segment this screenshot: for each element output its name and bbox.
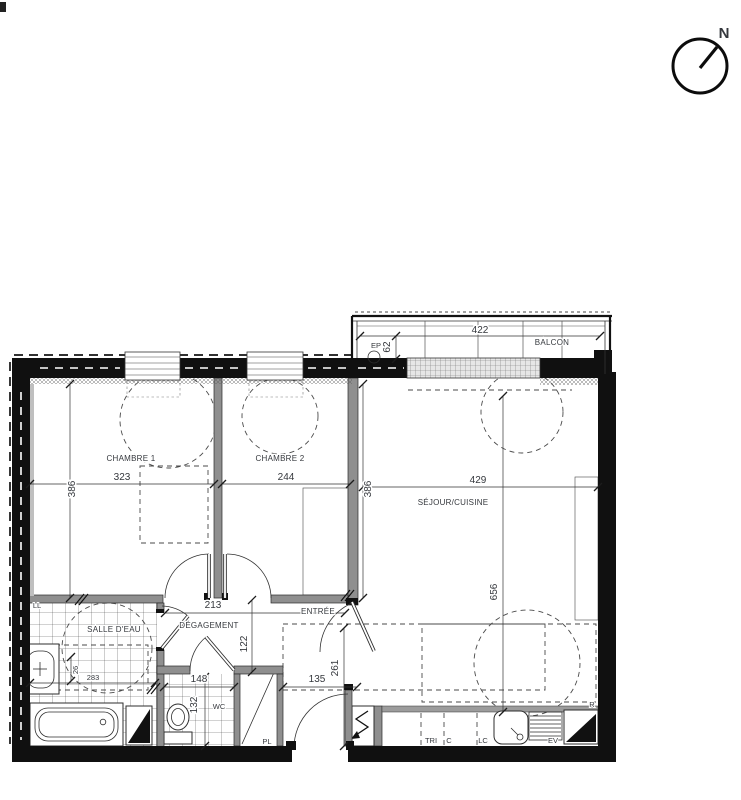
insulation-strip (540, 378, 598, 385)
room-label-degagement: DÉGAGEMENT (179, 621, 238, 630)
dim-chambre2-depth: 386 (363, 480, 374, 497)
label-c: C (446, 736, 452, 745)
dim-salle-deau-width: 283 (87, 673, 100, 682)
floor-plan-page: 422 62 386 323 244 386 429 656 213 122 1… (0, 0, 741, 800)
room-label-wc: WC (213, 702, 226, 711)
dim-chambre2-width: 244 (278, 472, 295, 483)
room-label-chambre2: CHAMBRE 2 (256, 454, 305, 463)
bay-window (407, 358, 540, 378)
dim-degagement-width: 213 (205, 600, 222, 611)
page-corner-mark (0, 2, 6, 12)
wall-liner (30, 384, 34, 596)
label-lave-linge: LL (33, 601, 41, 610)
label-lc: LC (478, 736, 488, 745)
room-label-chambre1: CHAMBRE 1 (107, 454, 156, 463)
dim-sejour-width: 429 (470, 475, 487, 486)
dim-salle-deau-small: 26 (71, 666, 80, 674)
insulation-strip (30, 378, 352, 384)
room-label-salle-deau: SALLE D'EAU (87, 625, 141, 634)
technical-shaft (126, 706, 152, 745)
water-heater (351, 706, 382, 746)
room-label-entree: ENTRÉE (301, 607, 335, 616)
label-evier: EV (548, 736, 558, 745)
window-chambre2 (247, 352, 303, 380)
dim-balcon-width: 422 (472, 325, 489, 336)
dim-chambre1-depth: 386 (67, 480, 78, 497)
dim-entree-depth: 261 (330, 659, 341, 676)
dim-wc-depth: 132 (189, 696, 200, 713)
dim-wc-width: 148 (191, 674, 208, 685)
room-label-balcon: BALCON (535, 338, 569, 347)
dim-balcon-depth: 62 (382, 341, 393, 353)
toilet (164, 704, 192, 744)
room-label-sejour-cuisine: SÉJOUR/CUISINE (418, 498, 489, 507)
label-refrigerateur: R (589, 700, 595, 709)
dim-sejour-depth: 656 (489, 583, 500, 600)
floor-plan-drawing: 422 62 386 323 244 386 429 656 213 122 1… (0, 0, 741, 800)
dim-entree-width: 135 (309, 674, 326, 685)
dim-degagement-clearance: 122 (239, 635, 250, 652)
label-eaux-pluviales: EP (371, 341, 381, 350)
label-tri: TRI (425, 736, 437, 745)
refrigerator (564, 710, 598, 744)
compass-north-label: N (719, 25, 730, 42)
window-chambre1 (125, 352, 180, 380)
room-label-placard: PL (262, 737, 271, 746)
bathtub (30, 703, 123, 746)
dim-chambre1-width: 323 (114, 472, 131, 483)
